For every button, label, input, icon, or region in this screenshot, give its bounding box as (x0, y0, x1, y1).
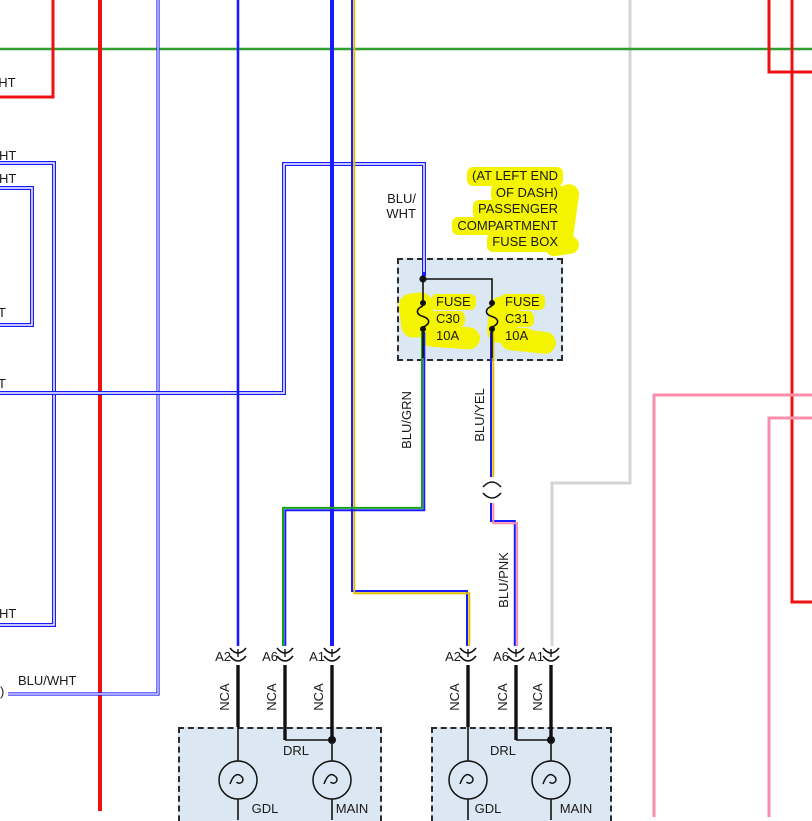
junction-dot (419, 275, 426, 282)
gray-wire (552, 0, 630, 646)
gdl-bulb-icon (219, 761, 257, 799)
left-pin-a2-label: A2 (193, 650, 231, 664)
fuse-c30-name: FUSE (431, 294, 476, 310)
fuse-c31-amps: 10A (500, 328, 533, 344)
left-pin-a1-label: A1 (287, 650, 325, 664)
fuse-c30-amps: 10A (431, 328, 464, 344)
fusebox-callout: (AT LEFT END OF DASH) PASSENGER COMPARTM… (380, 167, 563, 250)
main-bulb-icon (313, 761, 351, 799)
edge-label-wht-3: HT (0, 607, 16, 621)
left-nca-label-3: NCA (312, 677, 326, 717)
main-bulb-icon (532, 761, 570, 799)
left-drl-label: DRL (276, 744, 316, 758)
fuse-c30-code: C30 (431, 311, 465, 327)
edge-label-t-2: T (0, 377, 6, 391)
edge-label-wht-2: HT (0, 172, 16, 186)
callout-line: FUSE BOX (487, 233, 563, 252)
right-nca-label-1: NCA (448, 677, 462, 717)
edge-label-t-1: T (0, 306, 6, 320)
blu-wht-wires (0, 0, 424, 694)
right-nca-label-2: NCA (496, 677, 510, 717)
right-gdl-label: GDL (468, 802, 508, 816)
right-drl-label: DRL (483, 744, 523, 758)
blu-grn-wire-label: BLU/GRN (400, 380, 414, 460)
edge-label-wht-1: HT (0, 149, 16, 163)
edge-label-red-wht: WHT (0, 76, 16, 90)
inline-connector-icon (483, 482, 501, 498)
right-pin-a2-label: A2 (423, 650, 461, 664)
gdl-bulb-icon (449, 761, 487, 799)
fuse-c31-name: FUSE (500, 294, 545, 310)
left-gdl-label: GDL (245, 802, 285, 816)
left-nca-label-2: NCA (265, 677, 279, 717)
blu-pnk-wire-label: BLU/PNK (497, 540, 511, 620)
right-pin-a1-label: A1 (506, 650, 544, 664)
left-nca-label-1: NCA (218, 677, 232, 717)
left-pin-a6-label: A6 (240, 650, 278, 664)
junction-dot (328, 736, 336, 744)
pink-wires (654, 395, 812, 817)
wiring-diagram: WHT HT HT T T HT BLU/WHT ) BLU/ WHT (AT … (0, 0, 812, 821)
fuse-c31-code: C31 (500, 311, 534, 327)
right-pin-a6-label: A6 (471, 650, 509, 664)
fuse-c31-symbol (486, 300, 497, 358)
blu-wht-wire-label: BLU/WHT (18, 674, 77, 688)
left-main-label: MAIN (332, 802, 372, 816)
callout-line: PASSENGER (473, 200, 563, 219)
right-main-label: MAIN (556, 802, 596, 816)
right-nca-label-3: NCA (531, 677, 545, 717)
junction-dot (547, 736, 555, 744)
offpage-connector-mark: ) (0, 685, 4, 699)
callout-line: (AT LEFT END (467, 167, 563, 186)
fuse-c30-symbol (417, 300, 428, 358)
blu-yel-wire-label: BLU/YEL (473, 375, 487, 455)
